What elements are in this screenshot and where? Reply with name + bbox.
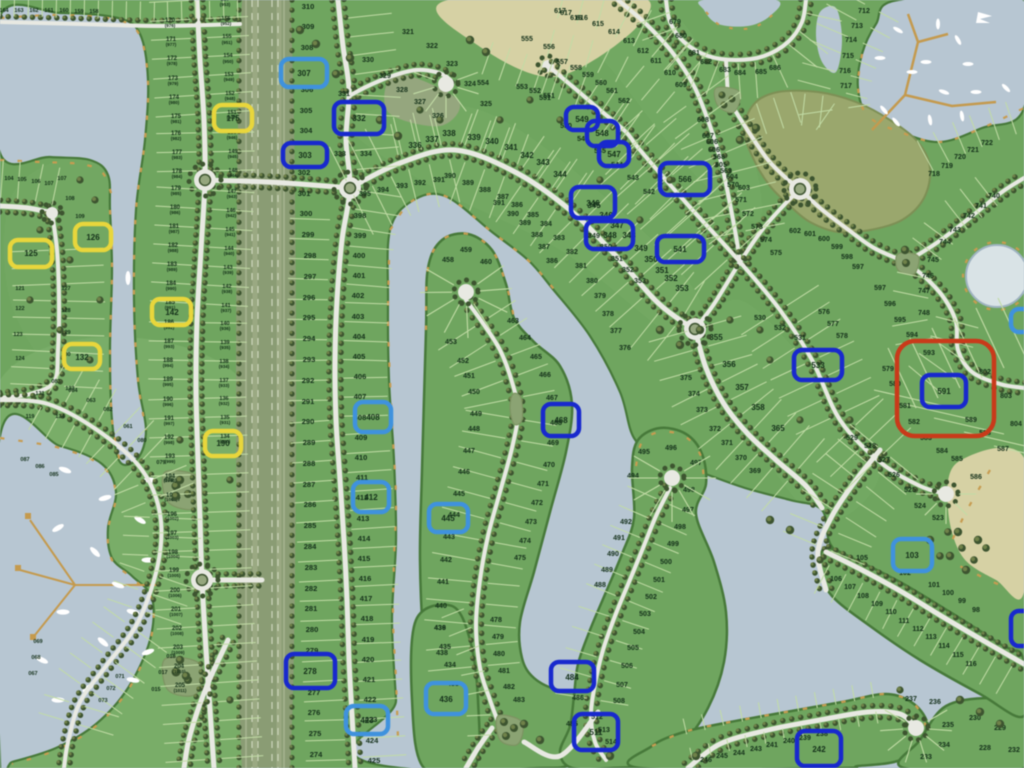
svg-text:067: 067 [28, 671, 37, 677]
svg-text:132: 132 [75, 353, 89, 362]
svg-text:(938): (938) [222, 289, 233, 294]
svg-text:324: 324 [464, 81, 476, 88]
svg-text:018: 018 [166, 654, 175, 660]
svg-text:453: 453 [445, 339, 457, 346]
svg-text:083: 083 [51, 379, 60, 385]
svg-text:337: 337 [425, 135, 439, 144]
svg-text:530: 530 [754, 315, 766, 322]
svg-text:349: 349 [588, 233, 600, 240]
svg-text:533: 533 [811, 361, 825, 370]
svg-text:(984): (984) [172, 174, 183, 179]
svg-text:593: 593 [923, 350, 935, 357]
svg-text:511: 511 [590, 728, 603, 737]
svg-text:(944): (944) [228, 173, 239, 178]
svg-text:300: 300 [300, 209, 313, 218]
svg-text:591: 591 [937, 387, 951, 396]
svg-text:479: 479 [492, 634, 504, 641]
svg-text:412: 412 [364, 493, 378, 502]
svg-text:288: 288 [303, 459, 316, 468]
svg-text:296: 296 [303, 293, 316, 302]
svg-text:527: 527 [878, 457, 890, 464]
svg-text:(939): (939) [223, 270, 234, 275]
svg-text:(932): (932) [219, 401, 230, 406]
svg-text:281: 281 [305, 604, 318, 613]
svg-text:163: 163 [14, 8, 23, 14]
svg-text:464: 464 [519, 335, 531, 342]
svg-text:551: 551 [539, 95, 551, 102]
svg-text:(1003): (1003) [165, 535, 179, 540]
svg-text:380: 380 [586, 278, 598, 285]
svg-text:391: 391 [493, 200, 505, 207]
svg-text:376: 376 [619, 345, 631, 352]
svg-text:721: 721 [967, 147, 979, 154]
svg-text:561: 561 [606, 88, 618, 95]
svg-text:685: 685 [755, 69, 767, 76]
svg-text:(981): (981) [171, 119, 182, 124]
svg-text:386: 386 [546, 258, 558, 265]
svg-text:377: 377 [610, 328, 622, 335]
svg-text:(999): (999) [165, 459, 176, 464]
svg-text:087: 087 [20, 457, 29, 463]
svg-text:528: 528 [864, 443, 876, 450]
svg-text:568: 568 [713, 154, 725, 161]
svg-text:158: 158 [89, 9, 98, 15]
svg-text:(982): (982) [171, 136, 182, 141]
svg-text:562: 562 [618, 98, 630, 105]
svg-text:390: 390 [507, 211, 519, 218]
svg-text:598: 598 [841, 254, 853, 261]
svg-text:386: 386 [511, 202, 523, 209]
svg-text:352: 352 [664, 274, 678, 283]
svg-text:615: 615 [592, 21, 604, 28]
svg-text:507: 507 [616, 682, 628, 689]
svg-text:398: 398 [354, 211, 367, 220]
svg-text:557: 557 [556, 59, 568, 66]
svg-text:594: 594 [906, 332, 918, 339]
svg-text:283: 283 [305, 563, 318, 572]
svg-text:722: 722 [981, 140, 993, 147]
svg-text:717: 717 [840, 83, 852, 90]
svg-text:190: 190 [216, 439, 230, 448]
svg-text:524: 524 [914, 503, 926, 510]
svg-text:508: 508 [613, 698, 625, 705]
svg-text:720: 720 [954, 154, 966, 161]
svg-text:584: 584 [936, 448, 948, 455]
svg-text:577: 577 [827, 321, 839, 328]
svg-text:104: 104 [4, 176, 14, 182]
svg-text:460: 460 [480, 259, 492, 266]
svg-text:714: 714 [845, 37, 857, 44]
svg-text:128: 128 [61, 308, 70, 314]
svg-text:548: 548 [595, 129, 609, 138]
svg-text:392: 392 [414, 180, 426, 187]
svg-text:443: 443 [443, 534, 455, 541]
svg-text:161: 161 [44, 8, 53, 14]
svg-text:276: 276 [308, 708, 321, 717]
svg-text:501: 501 [653, 577, 665, 584]
svg-text:(940): (940) [224, 251, 235, 256]
svg-text:387: 387 [538, 244, 550, 251]
svg-text:339: 339 [467, 133, 481, 142]
svg-text:162: 162 [29, 8, 38, 14]
svg-text:175: 175 [226, 114, 240, 123]
svg-text:061: 061 [123, 424, 132, 430]
svg-text:610: 610 [664, 70, 676, 77]
svg-text:073: 073 [98, 698, 107, 704]
svg-text:371: 371 [721, 440, 733, 447]
svg-text:614: 614 [608, 29, 620, 36]
svg-text:388: 388 [531, 232, 543, 239]
svg-text:142: 142 [165, 308, 179, 317]
svg-text:470: 470 [543, 462, 555, 469]
svg-text:159: 159 [74, 9, 83, 15]
svg-text:525: 525 [904, 487, 916, 494]
svg-text:471: 471 [537, 481, 549, 488]
svg-text:679: 679 [669, 19, 681, 26]
svg-text:463: 463 [507, 318, 519, 325]
svg-text:581: 581 [899, 403, 911, 410]
svg-text:607: 607 [702, 133, 714, 140]
svg-text:374: 374 [688, 391, 700, 398]
svg-text:494: 494 [627, 473, 639, 480]
svg-text:745: 745 [927, 257, 939, 264]
svg-text:332: 332 [352, 114, 366, 123]
svg-text:595: 595 [894, 317, 906, 324]
svg-text:384: 384 [540, 221, 552, 228]
svg-text:383: 383 [553, 235, 565, 242]
svg-text:(980): (980) [169, 100, 180, 105]
svg-text:435: 435 [439, 644, 451, 651]
svg-text:310: 310 [302, 2, 315, 11]
svg-text:302: 302 [298, 168, 311, 177]
svg-text:606: 606 [708, 147, 720, 154]
svg-text:239: 239 [799, 735, 811, 742]
svg-text:713: 713 [851, 23, 863, 30]
svg-text:578: 578 [836, 333, 848, 340]
svg-text:495: 495 [638, 449, 650, 456]
svg-text:604: 604 [726, 174, 738, 181]
svg-text:401: 401 [353, 271, 366, 280]
svg-text:482: 482 [503, 684, 515, 691]
svg-text:414: 414 [358, 534, 371, 543]
svg-text:402: 402 [352, 291, 365, 300]
svg-text:241: 241 [766, 742, 778, 749]
svg-text:(946): (946) [227, 135, 238, 140]
svg-text:346: 346 [586, 199, 600, 208]
svg-text:373: 373 [696, 407, 708, 414]
svg-text:(931): (931) [220, 420, 231, 425]
svg-text:(994): (994) [163, 363, 174, 368]
svg-text:305: 305 [300, 106, 313, 115]
svg-text:(989): (989) [167, 267, 178, 272]
svg-text:582: 582 [908, 419, 920, 426]
svg-text:505: 505 [627, 645, 639, 652]
svg-text:234: 234 [938, 742, 950, 749]
svg-text:369: 369 [749, 468, 761, 475]
svg-text:405: 405 [353, 352, 366, 361]
svg-text:451: 451 [463, 373, 475, 380]
svg-text:424: 424 [366, 736, 379, 745]
svg-text:108: 108 [65, 196, 74, 202]
svg-text:340: 340 [485, 137, 499, 146]
svg-text:543: 543 [627, 175, 639, 182]
svg-text:552: 552 [529, 88, 541, 95]
svg-text:743: 743 [949, 227, 961, 234]
svg-text:228: 228 [979, 745, 991, 752]
svg-text:344: 344 [553, 170, 567, 179]
svg-text:381: 381 [575, 263, 587, 270]
svg-text:612: 612 [637, 48, 649, 55]
svg-text:609: 609 [675, 82, 687, 89]
svg-text:465: 465 [530, 354, 542, 361]
svg-text:480: 480 [493, 651, 505, 658]
svg-text:(951): (951) [222, 40, 233, 45]
svg-text:275: 275 [309, 729, 322, 738]
svg-text:(941): (941) [225, 232, 236, 237]
svg-text:(936): (936) [220, 326, 231, 331]
svg-text:560: 560 [595, 80, 607, 87]
svg-text:488: 488 [594, 582, 606, 589]
svg-text:574: 574 [760, 237, 772, 244]
svg-text:410: 410 [355, 453, 368, 462]
svg-text:164: 164 [0, 8, 10, 14]
svg-text:390: 390 [444, 173, 456, 180]
svg-text:375: 375 [680, 375, 692, 382]
svg-text:160: 160 [59, 8, 68, 14]
svg-text:(983): (983) [172, 155, 183, 160]
svg-text:(993): (993) [164, 344, 175, 349]
svg-text:441: 441 [437, 579, 449, 586]
svg-text:278: 278 [303, 667, 317, 676]
svg-text:236: 236 [929, 699, 941, 706]
svg-text:358: 358 [751, 403, 765, 412]
svg-text:378: 378 [602, 311, 614, 318]
svg-text:491: 491 [613, 535, 625, 542]
svg-text:123: 123 [13, 332, 22, 338]
svg-text:566: 566 [678, 175, 692, 184]
svg-text:(937): (937) [221, 308, 232, 313]
svg-text:355: 355 [709, 333, 723, 342]
svg-text:(998): (998) [164, 440, 175, 445]
svg-text:331: 331 [338, 91, 350, 98]
svg-text:458: 458 [442, 257, 454, 264]
svg-text:450: 450 [468, 389, 480, 396]
svg-text:124: 124 [15, 356, 25, 362]
svg-text:413: 413 [357, 514, 370, 523]
svg-text:466: 466 [539, 372, 551, 379]
svg-text:490: 490 [607, 551, 619, 558]
svg-text:573: 573 [751, 224, 763, 231]
svg-text:107: 107 [44, 181, 53, 187]
svg-text:684: 684 [734, 70, 746, 77]
svg-text:436: 436 [439, 695, 453, 704]
svg-text:804: 804 [1010, 421, 1022, 428]
svg-text:(1011): (1011) [174, 688, 187, 693]
svg-text:329: 329 [379, 73, 391, 80]
svg-text:328: 328 [396, 87, 408, 94]
svg-text:(996): (996) [163, 402, 174, 407]
svg-text:499: 499 [667, 541, 679, 548]
svg-text:436: 436 [434, 625, 446, 632]
svg-text:116: 116 [965, 661, 976, 668]
svg-text:449: 449 [470, 411, 482, 418]
svg-text:307: 307 [297, 69, 311, 78]
svg-text:613: 613 [623, 38, 635, 45]
svg-text:357: 357 [735, 383, 749, 392]
svg-text:125: 125 [24, 249, 38, 258]
svg-text:287: 287 [303, 480, 316, 489]
svg-text:445: 445 [441, 514, 455, 523]
svg-text:608: 608 [697, 117, 709, 124]
svg-text:585: 585 [951, 456, 963, 463]
svg-text:080: 080 [137, 438, 146, 444]
svg-text:587: 587 [997, 446, 1009, 453]
svg-text:297: 297 [304, 272, 317, 281]
svg-text:744: 744 [939, 239, 951, 246]
svg-text:(990): (990) [166, 286, 177, 291]
svg-text:532: 532 [774, 325, 786, 332]
svg-text:244: 244 [733, 750, 745, 757]
svg-text:114: 114 [938, 643, 949, 650]
svg-text:330: 330 [362, 57, 374, 64]
svg-text:572: 572 [742, 211, 754, 218]
svg-text:419: 419 [362, 635, 375, 644]
svg-text:285: 285 [304, 521, 317, 530]
svg-text:434: 434 [444, 662, 456, 669]
svg-text:445: 445 [453, 491, 465, 498]
svg-text:110: 110 [885, 609, 896, 616]
svg-text:605: 605 [715, 162, 727, 169]
svg-text:(1006): (1006) [168, 593, 182, 598]
svg-text:103: 103 [905, 551, 919, 560]
svg-text:325: 325 [480, 101, 492, 108]
svg-text:240: 240 [783, 738, 795, 745]
svg-text:134: 134 [55, 414, 65, 420]
svg-text:388: 388 [479, 187, 491, 194]
svg-text:113: 113 [925, 634, 936, 641]
svg-text:284: 284 [304, 542, 317, 551]
svg-text:352: 352 [622, 267, 634, 274]
svg-text:400: 400 [353, 251, 366, 260]
svg-text:274: 274 [310, 750, 323, 759]
svg-text:472: 472 [531, 500, 543, 507]
svg-text:541: 541 [673, 245, 687, 254]
svg-text:(935): (935) [220, 345, 231, 350]
svg-text:446: 446 [458, 469, 470, 476]
svg-text:469: 469 [547, 440, 559, 447]
svg-text:681: 681 [688, 50, 700, 57]
svg-text:079: 079 [156, 460, 165, 466]
svg-text:611: 611 [650, 58, 661, 65]
svg-text:748: 748 [918, 310, 930, 317]
svg-text:422: 422 [364, 695, 377, 704]
svg-text:321: 321 [402, 29, 414, 36]
svg-text:417: 417 [360, 594, 373, 603]
svg-text:126: 126 [86, 233, 100, 242]
svg-text:100: 100 [942, 590, 954, 597]
svg-text:606: 606 [706, 139, 718, 146]
svg-text:579: 579 [882, 366, 894, 373]
svg-text:523: 523 [932, 515, 944, 522]
svg-text:686: 686 [769, 65, 781, 72]
svg-text:127: 127 [61, 286, 70, 292]
svg-text:416: 416 [359, 574, 372, 583]
svg-text:602: 602 [789, 228, 801, 235]
svg-text:502: 502 [645, 594, 657, 601]
svg-text:554: 554 [477, 80, 489, 87]
svg-text:586: 586 [970, 474, 982, 481]
svg-text:747: 747 [918, 288, 930, 295]
svg-text:295: 295 [303, 313, 316, 322]
svg-text:353: 353 [675, 284, 689, 293]
svg-text:600: 600 [818, 236, 830, 243]
svg-text:98: 98 [972, 607, 980, 614]
svg-text:408: 408 [366, 413, 380, 422]
svg-text:299: 299 [302, 230, 315, 239]
svg-text:280: 280 [306, 625, 319, 634]
svg-text:382: 382 [566, 249, 578, 256]
svg-text:496: 496 [665, 445, 677, 452]
svg-text:343: 343 [536, 158, 550, 167]
svg-text:084: 084 [68, 388, 78, 394]
svg-text:719: 719 [941, 163, 953, 170]
svg-text:112: 112 [912, 626, 923, 633]
svg-text:473: 473 [525, 519, 537, 526]
svg-text:393: 393 [396, 183, 408, 190]
svg-text:500: 500 [660, 559, 672, 566]
svg-text:406: 406 [354, 372, 367, 381]
svg-text:575: 575 [770, 250, 782, 257]
svg-text:481: 481 [498, 668, 510, 675]
svg-text:389: 389 [519, 220, 531, 227]
svg-text:407: 407 [354, 392, 367, 401]
svg-text:308: 308 [301, 43, 314, 52]
svg-text:(997): (997) [164, 421, 175, 426]
svg-text:421: 421 [363, 675, 376, 684]
svg-text:107: 107 [57, 176, 66, 182]
svg-text:452: 452 [457, 358, 469, 365]
svg-text:282: 282 [305, 584, 318, 593]
svg-text:(949): (949) [224, 77, 235, 82]
svg-text:404: 404 [353, 332, 366, 341]
svg-text:403: 403 [352, 312, 365, 321]
svg-text:327: 327 [414, 99, 426, 106]
svg-text:498: 498 [674, 524, 686, 531]
svg-text:423: 423 [360, 716, 374, 725]
svg-text:379: 379 [594, 293, 606, 300]
svg-text:122: 122 [15, 306, 24, 312]
svg-text:(979): (979) [168, 81, 179, 86]
svg-text:372: 372 [709, 426, 721, 433]
svg-text:292: 292 [302, 376, 315, 385]
svg-text:589: 589 [965, 417, 977, 424]
svg-text:559: 559 [582, 72, 594, 79]
svg-text:246: 246 [700, 757, 712, 764]
svg-text:399: 399 [354, 231, 367, 240]
svg-text:716: 716 [839, 68, 851, 75]
svg-text:341: 341 [504, 143, 518, 152]
svg-text:063: 063 [86, 398, 95, 404]
svg-text:(942): (942) [226, 213, 237, 218]
svg-text:290: 290 [302, 417, 315, 426]
svg-text:323: 323 [446, 61, 458, 68]
svg-text:503: 503 [639, 611, 651, 618]
svg-text:291: 291 [302, 397, 315, 406]
svg-text:356: 356 [722, 360, 736, 369]
svg-text:478: 478 [490, 617, 502, 624]
svg-text:109: 109 [75, 214, 84, 220]
svg-text:486: 486 [572, 695, 584, 702]
